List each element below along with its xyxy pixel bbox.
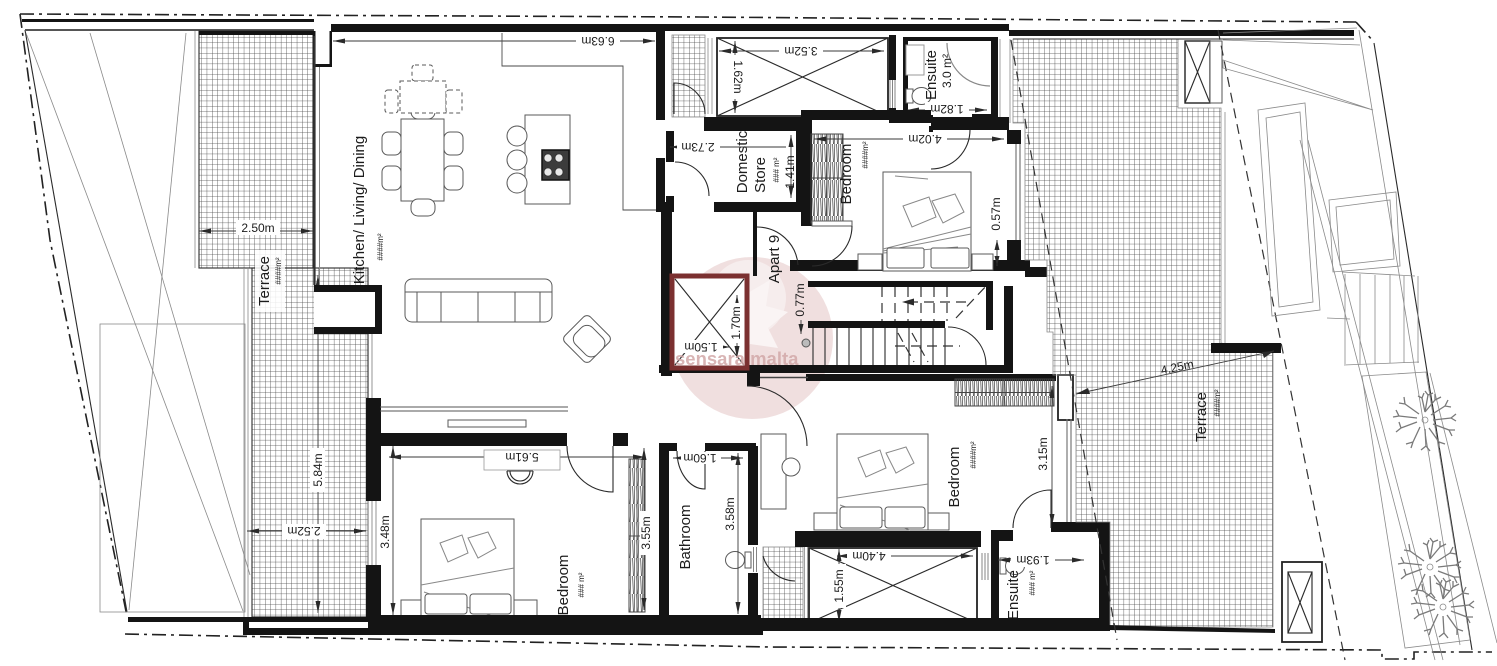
svg-text:Bedroom: Bedroom [555, 555, 572, 616]
svg-text:3.58m: 3.58m [723, 497, 737, 530]
svg-text:Bathroom: Bathroom [677, 504, 694, 569]
svg-text:Store: Store [752, 157, 769, 193]
svg-text:4.40m: 4.40m [852, 549, 885, 563]
svg-text:### m²: ### m² [772, 157, 781, 182]
svg-text:2.52m: 2.52m [287, 524, 320, 538]
svg-text:3.0 m²: 3.0 m² [940, 54, 954, 88]
svg-text:2.73m: 2.73m [681, 140, 714, 154]
svg-text:####m²: ####m² [969, 441, 978, 468]
svg-text:Terrace: Terrace [1193, 392, 1210, 442]
svg-text:1.62m: 1.62m [731, 60, 745, 93]
svg-text:Kitchen/ Living/ Dining: Kitchen/ Living/ Dining [351, 136, 368, 284]
svg-text:Bedroom: Bedroom [946, 447, 963, 508]
svg-text:1.70m: 1.70m [729, 306, 743, 339]
svg-text:Terrace: Terrace [256, 256, 273, 306]
svg-text:3.15m: 3.15m [1036, 437, 1050, 470]
svg-text:####m²: ####m² [861, 141, 870, 168]
svg-text:3.48m: 3.48m [378, 515, 392, 548]
svg-text:### m²: ### m² [577, 572, 586, 597]
svg-text:Bedroom: Bedroom [838, 144, 855, 205]
svg-text:####m²: ####m² [1213, 389, 1222, 416]
svg-text:3.55m: 3.55m [639, 516, 653, 549]
svg-text:4.02m: 4.02m [908, 132, 941, 146]
svg-text:0.77m: 0.77m [793, 283, 807, 316]
svg-text:Ensuite: Ensuite [1005, 570, 1022, 620]
svg-text:1.60m: 1.60m [683, 451, 716, 465]
svg-text:Apart 9: Apart 9 [766, 235, 783, 283]
svg-text:6.63m: 6.63m [581, 34, 614, 48]
svg-text:5.61m: 5.61m [505, 450, 538, 464]
svg-text:Ensuite: Ensuite [923, 50, 940, 100]
svg-text:sensara malta: sensara malta [675, 348, 799, 369]
svg-text:0.57m: 0.57m [989, 197, 1003, 230]
svg-text:Domestic: Domestic [734, 130, 751, 193]
svg-text:2.50m: 2.50m [241, 221, 274, 235]
svg-text:1.41m: 1.41m [783, 155, 797, 188]
svg-text:####m²: ####m² [274, 257, 283, 284]
svg-text:1.82m: 1.82m [930, 102, 963, 116]
svg-text:1.55m: 1.55m [832, 569, 846, 602]
svg-text:3.52m: 3.52m [784, 44, 817, 58]
svg-text:1.93m: 1.93m [1016, 553, 1049, 567]
svg-text:### m²: ### m² [1028, 570, 1037, 595]
svg-text:5.84m: 5.84m [311, 453, 325, 486]
svg-text:####m²: ####m² [376, 233, 385, 260]
